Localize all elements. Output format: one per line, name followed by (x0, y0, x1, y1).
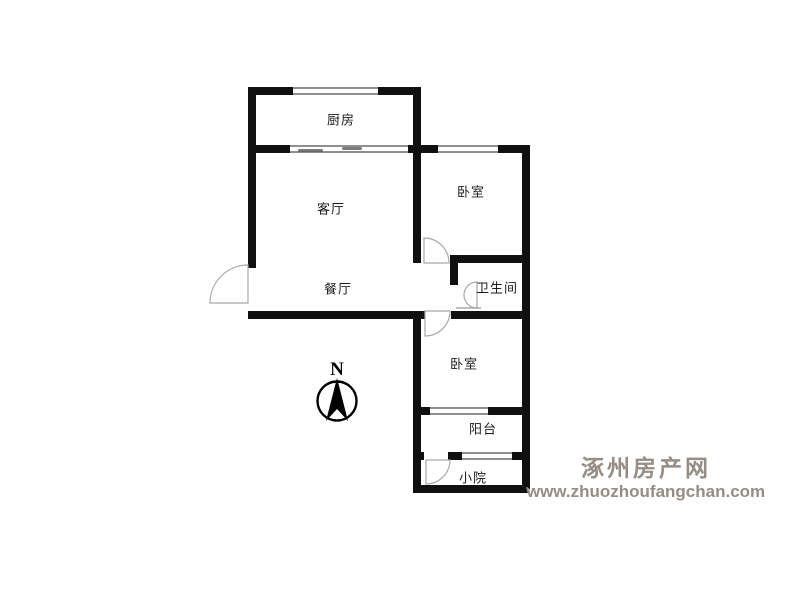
wall-yard-top-left (413, 452, 424, 460)
entry-door-arc (210, 265, 248, 303)
room-label-yard: 小院 (459, 468, 487, 487)
window-bedroom-north (438, 145, 498, 153)
bedroom-south-door-arc (425, 311, 450, 336)
window-kitchen-top (293, 87, 378, 95)
wall-kitchen-top-left (248, 87, 293, 95)
floorplan: 厨房 客厅 卧室 餐厅 卫生间 卧室 阳台 小院 N 涿州房产网 www.zhu… (0, 0, 800, 600)
wall-right (522, 145, 530, 493)
room-label-bedroom-north: 卧室 (457, 182, 485, 201)
compass: N (310, 352, 370, 432)
room-label-kitchen: 厨房 (327, 110, 355, 129)
window-sash-mark (298, 149, 323, 152)
north-arrow-icon (326, 378, 348, 421)
wall-middle-lower (413, 311, 421, 493)
wall-dining-bottom (248, 311, 425, 319)
room-label-dining-room: 餐厅 (324, 279, 352, 298)
window-yard (462, 452, 512, 460)
wall-middle-upper (413, 87, 421, 263)
room-label-living-room: 客厅 (317, 199, 345, 218)
bedroom-north-door-arc (424, 238, 449, 263)
wall-left (248, 87, 256, 268)
watermark: 涿州房产网 www.zhuozhoufangchan.com (518, 457, 774, 500)
wall-kitchen-top-right (378, 87, 421, 95)
yard-door-arc (426, 460, 450, 484)
room-label-bedroom-south: 卧室 (450, 354, 478, 373)
wall-balcony-top-right (488, 407, 530, 415)
wall-bathroom-bottom (451, 311, 530, 319)
wall-bathroom-left (450, 263, 458, 285)
wall-bathroom-top (450, 255, 530, 263)
watermark-site-name: 涿州房产网 (518, 457, 774, 480)
wall-kitchen-bottom-left (248, 145, 290, 153)
wall-yard-top-mid (448, 452, 462, 460)
wall-bedroom-north-top-left (408, 145, 438, 153)
wall-bedroom-north-top-right (498, 145, 530, 153)
window-sash-mark (342, 147, 362, 150)
room-label-balcony: 阳台 (469, 419, 497, 438)
watermark-site-url: www.zhuozhoufangchan.com (518, 483, 774, 500)
compass-north-label: N (330, 359, 344, 380)
window-bedroom-south (430, 407, 488, 415)
wall-balcony-top-left (413, 407, 430, 415)
room-label-bathroom: 卫生间 (476, 278, 518, 297)
